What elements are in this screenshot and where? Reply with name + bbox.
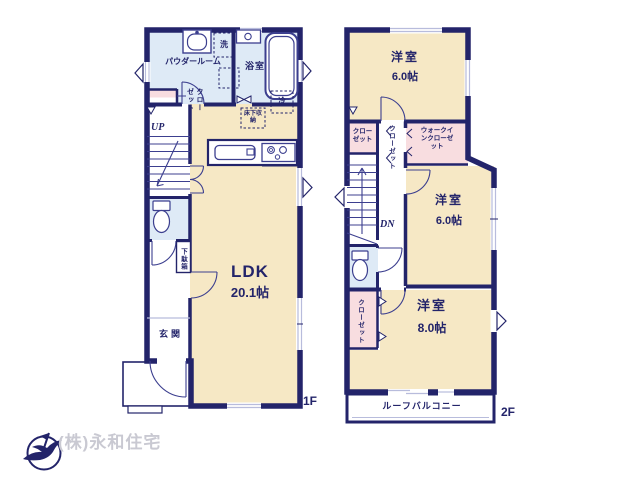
label-closet-1f: クローゼット: [185, 86, 204, 114]
label-fridge: 冷: [272, 97, 292, 106]
floor1-plan: [123, 27, 312, 414]
toilet2f-icon: [352, 251, 368, 260]
label-powder-room: パウダールーム: [153, 57, 233, 66]
floor2-plan: [335, 27, 506, 423]
label-bedroom1-size: 6.0帖: [379, 71, 431, 84]
label-bedroom1: 洋室: [379, 51, 431, 65]
label-bedroom3: 洋室: [403, 299, 461, 314]
label-roof-balcony: ルーフバルコニー: [377, 401, 467, 411]
label-underfloor-storage: 床下収納: [242, 111, 264, 126]
label-bedroom2-size: 6.0帖: [423, 215, 475, 228]
label-walk-in-closet: ウォークインクローゼット: [420, 127, 454, 151]
label-closet-2f-hall: クローゼット: [387, 123, 394, 171]
label-floor2: 2F: [501, 406, 515, 420]
company-name: (株)永和住宅: [58, 433, 161, 453]
label-stairs-down: DN: [380, 219, 394, 231]
floorplan-drawing: [0, 0, 640, 480]
label-stairs-up: UP: [151, 122, 164, 134]
bathtub-icon: [266, 33, 298, 99]
label-entrance: 玄関: [152, 329, 190, 339]
bird-compass-logo: [23, 433, 62, 470]
floorplan-page: パウダールーム 洗 浴室 冷 床下収納 クローゼット UP 下駄箱 玄関 LDK…: [0, 0, 640, 480]
closet1f-fill: [147, 90, 177, 98]
label-floor1: 1F: [303, 395, 317, 409]
label-closet-2f-a: クローゼット: [352, 128, 373, 144]
label-ldk: LDK: [205, 262, 295, 282]
porch-step: [128, 406, 162, 413]
label-shoe-cabinet: 下駄箱: [179, 245, 186, 273]
toilet-icon: [153, 201, 170, 211]
label-bedroom2: 洋室: [423, 194, 475, 208]
label-ldk-size: 20.1帖: [205, 286, 295, 301]
label-bedroom3-size: 8.0帖: [403, 322, 461, 336]
bath-counter-icon: [237, 30, 261, 43]
porch: [123, 362, 190, 406]
label-bathroom: 浴室: [242, 61, 268, 71]
label-washer: 洗: [215, 40, 233, 49]
label-closet-2f-b: クローゼット: [356, 296, 363, 346]
